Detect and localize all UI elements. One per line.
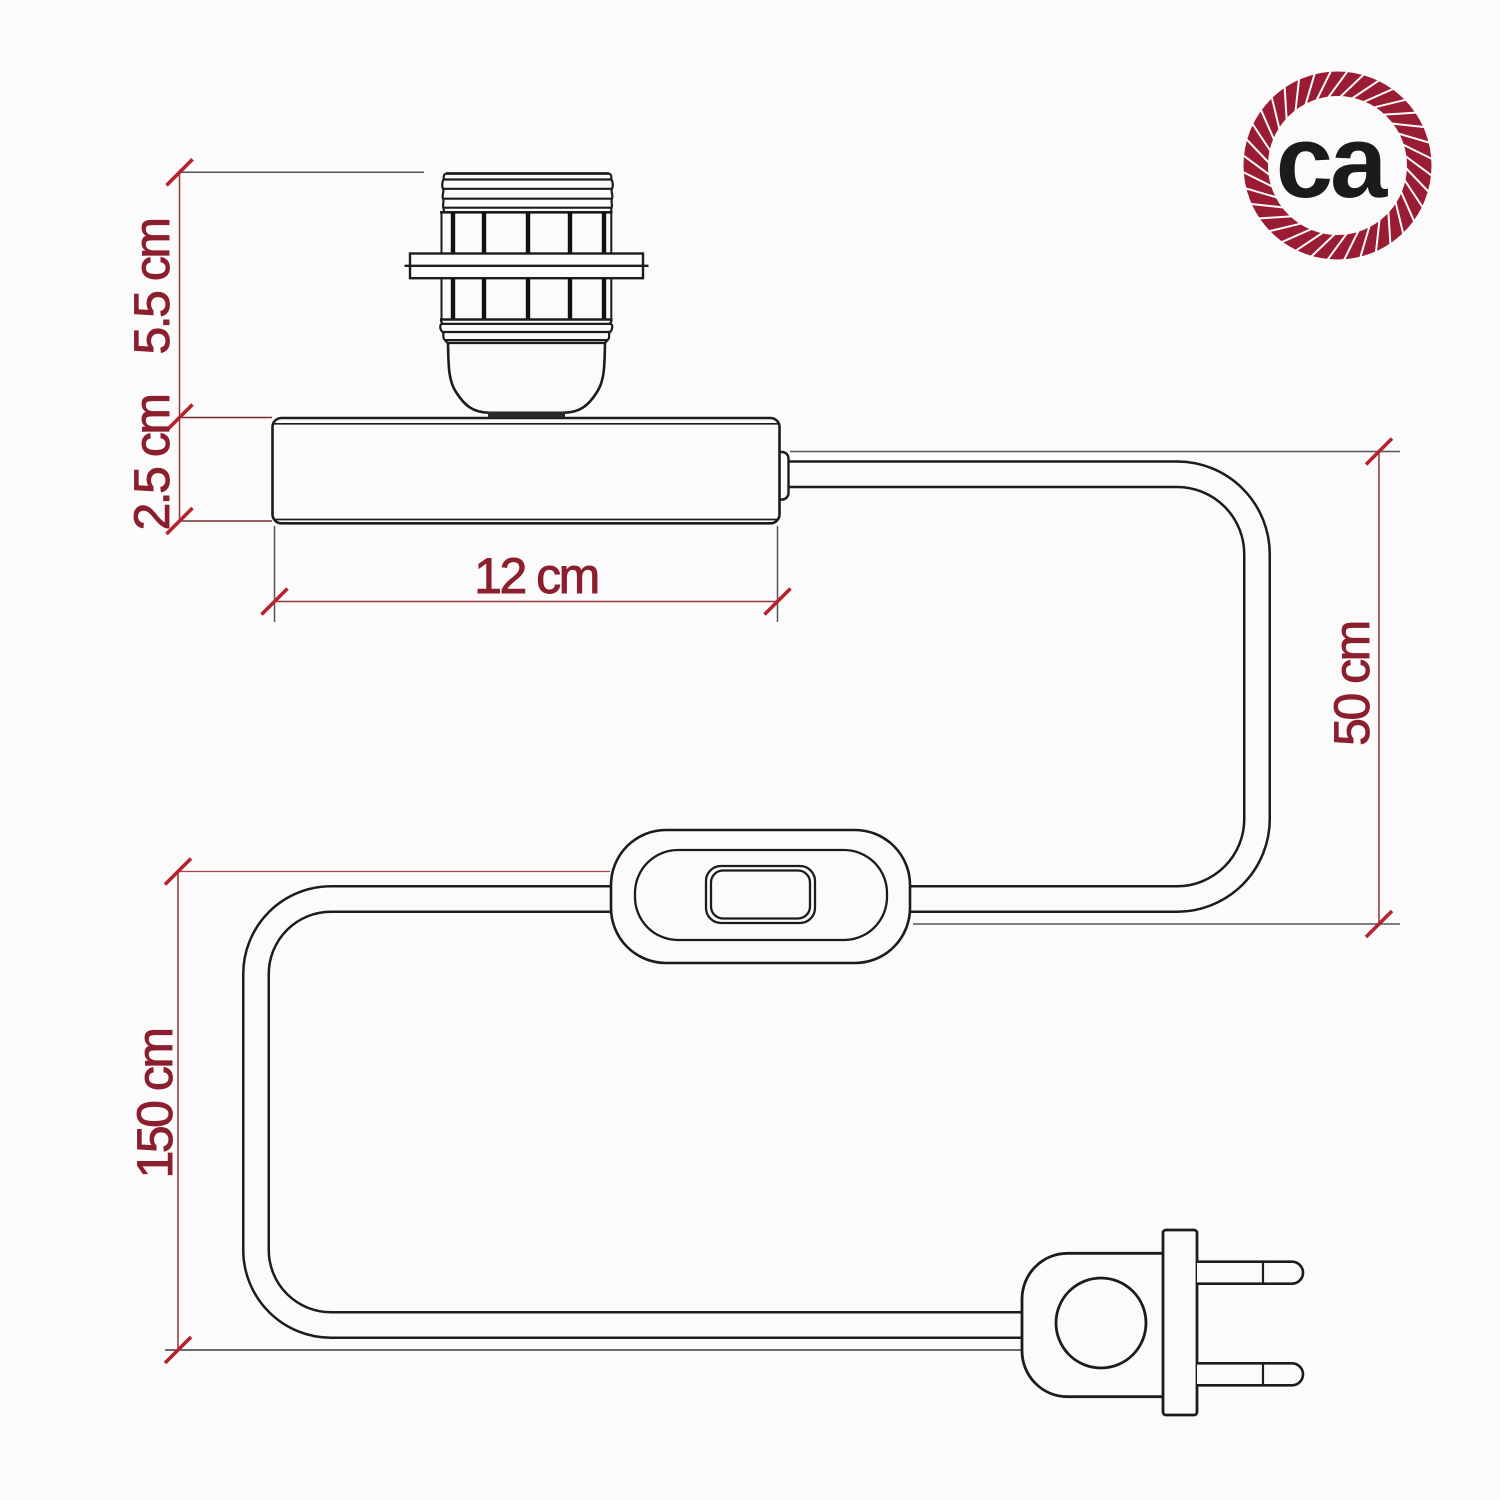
svg-text:12 cm: 12 cm [474, 548, 598, 604]
svg-text:2.5 cm: 2.5 cm [124, 395, 180, 530]
svg-text:5.5 cm: 5.5 cm [124, 219, 180, 354]
svg-text:50 cm: 50 cm [1324, 622, 1380, 746]
svg-text:ca: ca [1276, 104, 1388, 219]
svg-text:150 cm: 150 cm [127, 1030, 183, 1179]
